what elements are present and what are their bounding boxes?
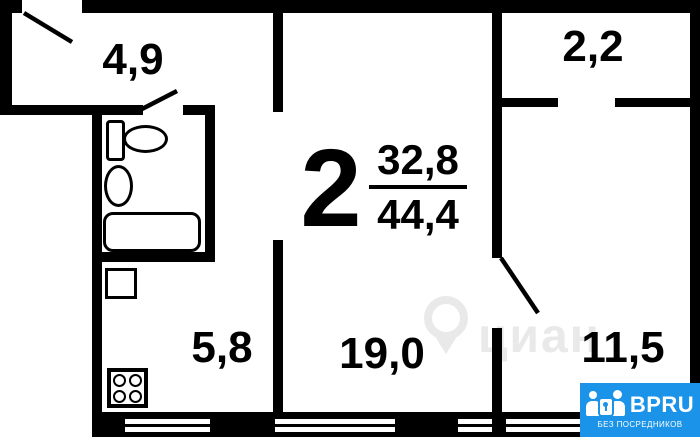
stove-burner — [113, 390, 126, 403]
bedroom-window — [458, 419, 580, 424]
sink-basin — [123, 125, 168, 153]
closet-area-label: 2,2 — [562, 25, 623, 69]
logo-tagline: БЕЗ ПОСРЕДНИКОВ — [598, 420, 683, 429]
area-living: 32,8 — [368, 139, 468, 181]
stove-burner — [113, 374, 126, 387]
kitchen-area-label: 5,8 — [191, 326, 252, 370]
kitchen-window — [125, 419, 210, 424]
bedroom-area-label: 11,5 — [581, 326, 664, 370]
toilet — [104, 165, 133, 207]
people-lock-icon — [586, 391, 626, 418]
bedroom-window — [458, 427, 580, 432]
area-fraction: 32,8 44,4 — [368, 139, 468, 236]
bedroom-door-swing — [501, 258, 538, 313]
stove-icon — [107, 368, 148, 408]
wall-window-junction — [492, 412, 506, 437]
living-room-area-label: 19,0 — [339, 332, 425, 376]
site-logo: BPRU БЕЗ ПОСРЕДНИКОВ — [580, 383, 700, 437]
floor-plan: циан 4,9 2,2 — [0, 0, 700, 437]
stove-burner — [129, 390, 142, 403]
rooms-count: 2 — [300, 134, 361, 244]
kitchen-window — [125, 427, 210, 432]
fraction-bar — [369, 185, 467, 189]
living-room-window — [275, 427, 395, 432]
stove-burner — [129, 374, 142, 387]
entrance-door-swing — [24, 13, 72, 42]
logo-brand: BPRU — [630, 394, 694, 416]
hallway-area-label: 4,9 — [102, 38, 163, 82]
living-room-window — [275, 419, 395, 424]
area-total: 44,4 — [368, 194, 468, 236]
bathroom-door-swing — [142, 91, 177, 109]
washing-machine — [105, 268, 137, 299]
bathtub — [103, 212, 201, 252]
